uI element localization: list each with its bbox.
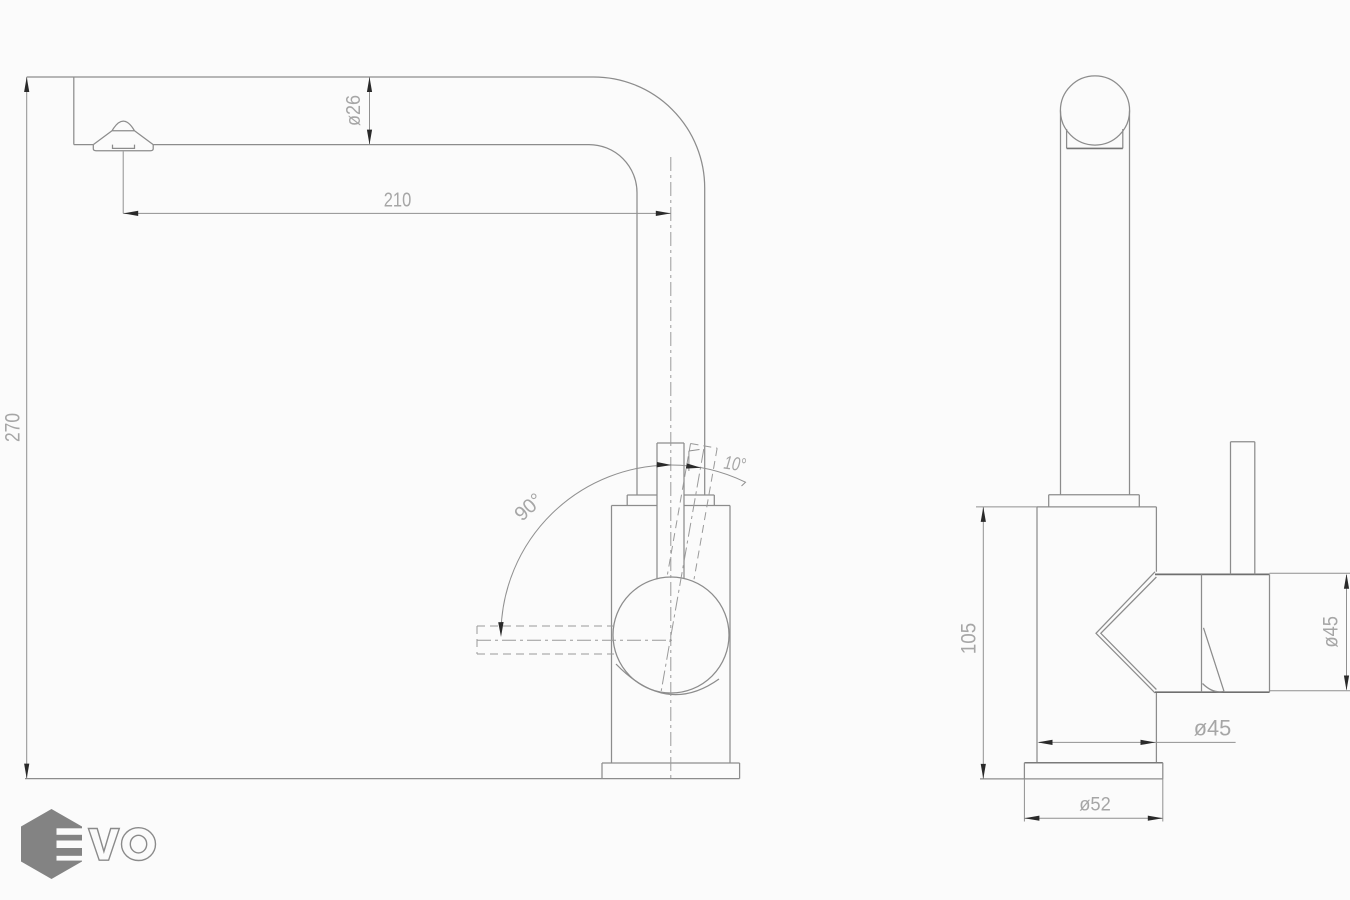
svg-text:10°: 10°	[722, 453, 747, 477]
svg-text:ø45: ø45	[1320, 616, 1343, 648]
svg-text:210: 210	[384, 190, 412, 212]
svg-text:105: 105	[958, 623, 981, 654]
svg-text:ø45: ø45	[1194, 716, 1232, 741]
svg-text:ø52: ø52	[1079, 795, 1111, 816]
svg-text:ø26: ø26	[343, 95, 365, 126]
svg-text:90°: 90°	[510, 489, 547, 525]
svg-text:270: 270	[2, 413, 25, 442]
